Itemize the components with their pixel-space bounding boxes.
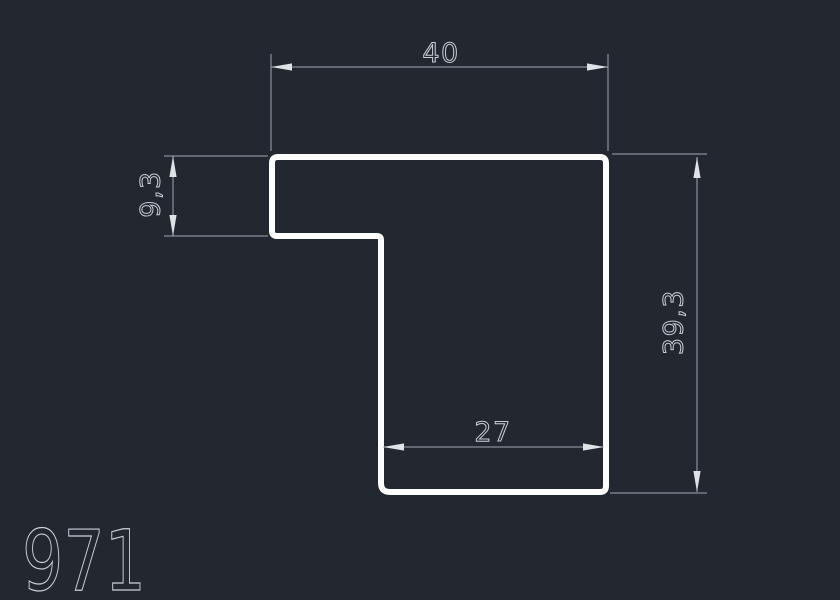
dimension-bottom-width: 27 bbox=[383, 417, 604, 451]
arrow-right-icon bbox=[587, 63, 608, 70]
dimension-top-width: 40 bbox=[271, 38, 608, 151]
drawing-area: 40 9,3 39,3 27 971 bbox=[0, 0, 840, 600]
dimension-value-right-height: 39,3 bbox=[659, 289, 690, 355]
profile-outline bbox=[272, 157, 606, 492]
dimension-right-height: 39,3 bbox=[610, 154, 707, 493]
arrow-up-icon bbox=[169, 156, 176, 177]
dimension-left-height: 9,3 bbox=[136, 156, 269, 236]
arrow-right-icon bbox=[583, 443, 604, 450]
arrow-down-icon bbox=[693, 471, 700, 492]
arrow-left-icon bbox=[271, 63, 292, 70]
cad-drawing-svg: 40 9,3 39,3 27 971 bbox=[0, 0, 840, 600]
dimension-value-top-width: 40 bbox=[422, 38, 459, 69]
dimension-value-left-height: 9,3 bbox=[136, 170, 167, 217]
arrow-down-icon bbox=[169, 215, 176, 236]
arrow-up-icon bbox=[693, 157, 700, 178]
part-number-label: 971 bbox=[22, 512, 146, 600]
arrow-left-icon bbox=[383, 443, 404, 450]
dimension-value-bottom-width: 27 bbox=[474, 417, 511, 448]
